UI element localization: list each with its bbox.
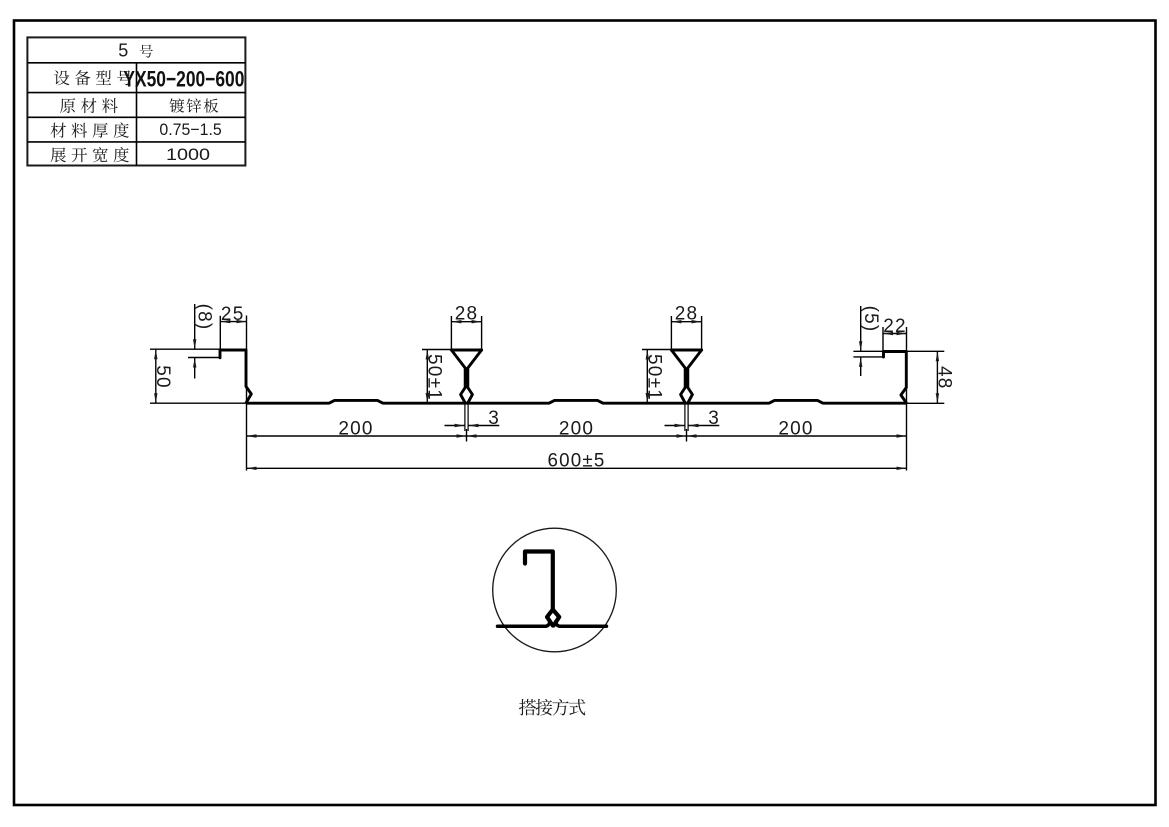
svg-text:200: 200 [559,418,594,439]
svg-text:50±1: 50±1 [424,354,445,401]
svg-text:48: 48 [934,366,955,390]
svg-text:25: 25 [221,304,245,325]
svg-text:50: 50 [152,365,173,389]
svg-text:28: 28 [455,304,479,325]
svg-text:3: 3 [488,408,499,429]
svg-text:5: 5 [118,41,128,61]
svg-text:(8): (8) [194,304,215,331]
svg-text:200: 200 [778,418,813,439]
svg-text:22: 22 [883,316,907,337]
svg-text:YX50−200−600: YX50−200−600 [123,66,244,91]
svg-text:(5): (5) [860,306,881,333]
svg-text:3: 3 [708,408,719,429]
svg-text:600±5: 600±5 [548,451,606,472]
svg-text:28: 28 [675,304,699,325]
svg-text:0.75−1.5: 0.75−1.5 [159,120,221,139]
svg-text:200: 200 [338,418,373,439]
svg-text:1000: 1000 [166,145,210,164]
svg-text:50±1: 50±1 [644,354,665,401]
